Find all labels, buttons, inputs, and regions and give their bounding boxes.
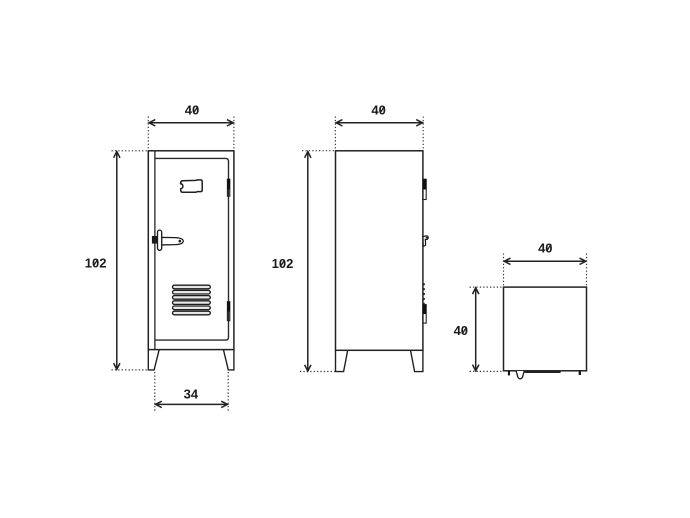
svg-text:40: 40 — [538, 240, 552, 255]
svg-text:34: 34 — [184, 387, 199, 402]
svg-text:40: 40 — [185, 103, 199, 118]
svg-text:40: 40 — [371, 103, 385, 118]
svg-text:40: 40 — [454, 323, 468, 338]
